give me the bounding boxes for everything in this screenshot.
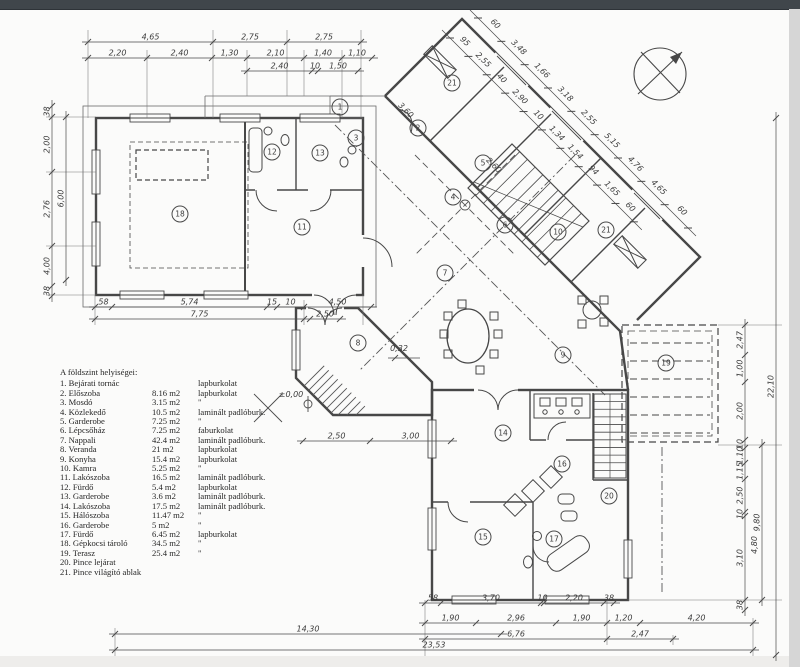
legend-room-name: 7. Nappali: [60, 436, 152, 445]
dimension-label: 60: [675, 204, 689, 218]
room-marker-number: 5: [481, 159, 486, 168]
room-marker-number: 2: [416, 124, 421, 133]
dimension-label: 2,55: [579, 108, 598, 127]
eaves-lines: [83, 96, 385, 307]
dimension-line: [470, 10, 696, 236]
legend-room-floor: ": [198, 539, 310, 548]
legend-room-floor: [198, 558, 310, 567]
dimension-label: 1,50: [329, 62, 347, 71]
dimension-label: 38: [43, 106, 52, 116]
legend-row: 19. Terasz25.4 m2": [60, 549, 310, 558]
room-marker-number: 7: [443, 269, 448, 278]
legend-room-name: 19. Terasz: [60, 549, 152, 558]
dimension-label: 10: [285, 298, 295, 307]
legend-room-floor: [198, 568, 310, 577]
room-marker-number: 19: [661, 359, 671, 368]
dimension-label: 2,90: [511, 87, 530, 106]
dimension-label: 38: [736, 600, 745, 610]
legend-row: 6. Lépcsőház7.25 m2faburkolat: [60, 426, 310, 435]
room-marker-number: 10: [553, 228, 563, 237]
dimension-label: 58: [428, 594, 438, 603]
dimension-label: 23,53: [423, 641, 446, 650]
room-marker-number: 9: [561, 351, 566, 360]
room-legend: A földszint helyiségei: 1. Bejárati torn…: [60, 368, 310, 577]
legend-room-area: 25.4 m2: [152, 549, 198, 558]
dimension-label: 1,90: [442, 614, 460, 623]
legend-room-floor: lapburkolat: [198, 455, 310, 464]
legend-row: 9. Konyha15.4 m2lapburkolat: [60, 455, 310, 464]
legend-room-name: 2. Előszoba: [60, 389, 152, 398]
room-marker-number: 21: [447, 79, 457, 88]
legend-room-name: 11. Lakószoba: [60, 473, 152, 482]
dimension-label: 3,70: [482, 594, 500, 603]
dimension-label: 1,34: [547, 124, 566, 143]
dimension-label: 2,00: [736, 402, 745, 420]
dimension-label: 7,75: [191, 310, 209, 319]
dimension-label: 1,10: [348, 49, 366, 58]
legend-room-name: 18. Gépkocsi tároló: [60, 539, 152, 548]
room-marker-number: 1: [338, 103, 343, 112]
dimension-label: 5,74: [181, 298, 199, 307]
legend-row: 5. Garderobe7.25 m2": [60, 417, 310, 426]
dimension-label: 2,00: [43, 136, 52, 154]
dimension-label: 58: [98, 298, 108, 307]
legend-room-name: 15. Hálószoba: [60, 511, 152, 520]
legend-row: 17. Fürdő6.45 m2lapburkolat: [60, 530, 310, 539]
room-marker-number: 3: [354, 134, 359, 143]
legend-row: 20. Pince lejárat: [60, 558, 310, 567]
dimension-label: 1,15: [736, 462, 745, 480]
room-marker-number: 15: [478, 533, 488, 542]
legend-room-name: 5. Garderobe: [60, 417, 152, 426]
legend-room-floor: laminált padlóburk.: [198, 502, 310, 511]
dimension-label: 2,20: [565, 594, 583, 603]
legend-room-floor: lapburkolat: [198, 530, 310, 539]
dimension-label: 2,40: [171, 49, 189, 58]
legend-room-floor: lapburkolat: [198, 389, 310, 398]
dimension-label: 2,96: [507, 614, 525, 623]
legend-row: 15. Hálószoba11.47 m2": [60, 511, 310, 520]
dimension-label: 2,50: [328, 432, 346, 441]
legend-room-area: [152, 558, 198, 567]
dimension-label: 2,55: [474, 50, 493, 69]
dimension-label: 1,66: [533, 61, 552, 80]
legend-room-name: 3. Mosdó: [60, 398, 152, 407]
dimension-label: 1,90: [573, 614, 591, 623]
legend-title: A földszint helyiségei:: [60, 368, 310, 377]
legend-row: 14. Lakószoba17.5 m2laminált padlóburk.: [60, 502, 310, 511]
legend-room-name: 12. Fürdő: [60, 483, 152, 492]
dimension-label: 4,65: [649, 178, 668, 197]
legend-row: 12. Fürdő5.4 m2lapburkolat: [60, 483, 310, 492]
dimension-label: 6,76: [507, 630, 525, 639]
dimension-label: 1,00: [736, 360, 745, 378]
dimension-label: 4,65: [142, 33, 160, 42]
legend-room-name: 14. Lakószoba: [60, 502, 152, 511]
dimension-label: 10: [310, 62, 320, 71]
legend-row: 8. Veranda21 m2lapburkolat: [60, 445, 310, 454]
dimension-label: 60: [489, 17, 503, 31]
room-marker-number: 11: [297, 223, 307, 232]
dimension-label: 1,10: [736, 447, 745, 465]
dimension-label: 60: [624, 200, 638, 214]
dimension-label: 3,48: [509, 38, 528, 57]
dimension-label: 38: [43, 286, 52, 296]
legend-row: 10. Kamra5.25 m2": [60, 464, 310, 473]
dimension-label: 10: [537, 594, 547, 603]
room-marker-number: 13: [315, 149, 325, 158]
room-marker-number: 12: [267, 148, 277, 157]
dimension-label: 5,15: [603, 131, 622, 150]
dimension-label: 3,10: [736, 549, 745, 567]
room-marker-number: 18: [175, 210, 185, 219]
legend-room-name: 8. Veranda: [60, 445, 152, 454]
dimension-label: 2,75: [241, 33, 259, 42]
room-marker-number: 8: [356, 339, 361, 348]
dimension-label: 15: [267, 298, 277, 307]
dimension-label: 4,00: [43, 257, 52, 275]
dimension-label: 1,30: [221, 49, 239, 58]
dimension-label: 4,76: [626, 154, 645, 173]
dimension-label: 2,47: [736, 330, 745, 349]
dimension-label: 10: [736, 509, 745, 519]
legend-room-floor: ": [198, 549, 310, 558]
legend-row: 16. Garderobe5 m2": [60, 521, 310, 530]
dimension-label: 2,76: [43, 200, 52, 218]
legend-room-floor: laminált padlóburk.: [198, 408, 310, 417]
legend-room-name: 17. Fürdő: [60, 530, 152, 539]
legend-row: 18. Gépkocsi tároló34.5 m2": [60, 539, 310, 548]
terrace: [622, 325, 718, 442]
legend-row: 3. Mosdó3.15 m2": [60, 398, 310, 407]
north-arrow-icon: [634, 48, 686, 100]
legend-room-name: 20. Pince lejárat: [60, 558, 152, 567]
dimension-label: 3,00: [402, 432, 420, 441]
legend-room-name: 6. Lépcsőház: [60, 426, 152, 435]
dimension-label: 38: [604, 594, 614, 603]
dimension-label: 2,47: [631, 630, 650, 639]
dimension-label: 2,75: [315, 33, 333, 42]
room-marker-number: 17: [549, 535, 559, 544]
dimension-label: 10: [532, 108, 546, 122]
legend-row: 11. Lakószoba16.5 m2laminált padlóburk.: [60, 473, 310, 482]
dimension-label: 2,50: [316, 310, 334, 319]
dimension-label: 4,80: [750, 536, 759, 554]
legend-row: 21. Pince világító ablak: [60, 568, 310, 577]
room-marker-number: 21: [601, 226, 611, 235]
dimension-label: 1,54: [566, 142, 585, 161]
dimension-label: 2,10: [267, 49, 285, 58]
legend-room-name: 10. Kamra: [60, 464, 152, 473]
legend-row: 2. Előszoba8.16 m2lapburkolat: [60, 389, 310, 398]
legend-rows: 1. Bejárati tornáclapburkolat2. Előszoba…: [60, 379, 310, 577]
dimension-label: 1,40: [314, 49, 332, 58]
legend-room-floor: ": [198, 511, 310, 520]
dimension-label: 94: [587, 163, 601, 177]
dimension-label: 3,18: [556, 84, 575, 103]
dimension-label: 0,32: [390, 344, 408, 353]
room-marker-number: 4: [451, 193, 456, 202]
dimension-label: 1,20: [615, 614, 633, 623]
dimension-label: 2,40: [271, 62, 289, 71]
legend-room-name: 9. Konyha: [60, 455, 152, 464]
dimension-label: 9,80: [753, 514, 762, 532]
dimension-label: 1,65: [603, 179, 622, 198]
legend-room-area: [152, 568, 198, 577]
dimension-label: 22,10: [767, 375, 776, 398]
dimension-label: 95: [458, 35, 472, 49]
room-marker-number: 14: [498, 429, 508, 438]
room-marker-number: 16: [557, 460, 567, 469]
legend-row: 4. Közlekedő10.5 m2laminált padlóburk.: [60, 408, 310, 417]
legend-row: 1. Bejárati tornáclapburkolat: [60, 379, 310, 388]
dimension-label: 2,20: [109, 49, 127, 58]
legend-room-name: 1. Bejárati tornác: [60, 379, 152, 388]
dimension-label: 6,00: [57, 190, 66, 208]
legend-room-name: 16. Garderobe: [60, 521, 152, 530]
legend-row: 7. Nappali42.4 m2laminált padlóburk.: [60, 436, 310, 445]
room-marker-number: 20: [604, 492, 614, 501]
legend-row: 13. Garderobe3.6 m2laminált padlóburk.: [60, 492, 310, 501]
dimension-label: 4,50: [329, 298, 347, 307]
legend-room-name: 13. Garderobe: [60, 492, 152, 501]
legend-room-name: 21. Pince világító ablak: [60, 568, 152, 577]
dimension-label: 14,30: [297, 625, 320, 634]
dimension-label: 2,50: [736, 487, 745, 505]
dimension-label: 4,20: [688, 614, 706, 623]
legend-room-name: 4. Közlekedő: [60, 408, 152, 417]
